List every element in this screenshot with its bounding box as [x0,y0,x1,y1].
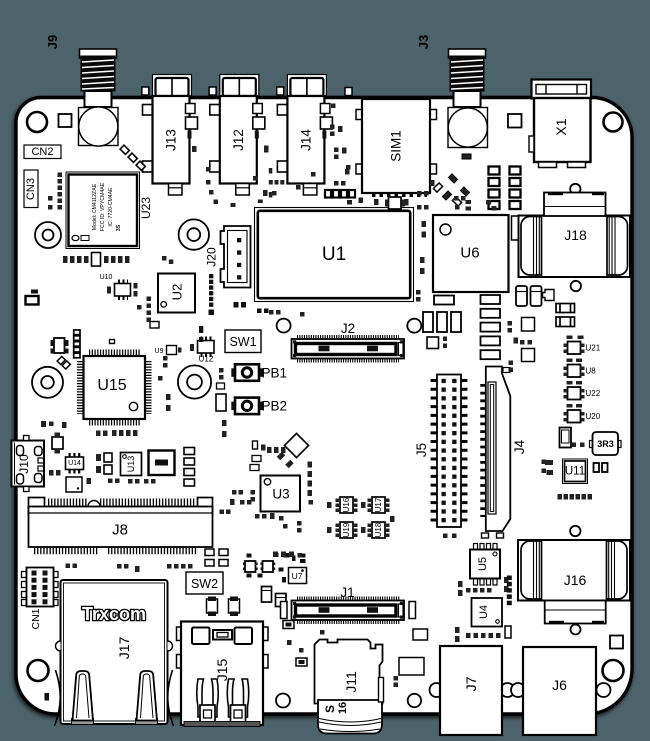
svg-text:U12: U12 [199,355,214,364]
svg-text:FCC ID: VPYCM4AE: FCC ID: VPYCM4AE [100,182,106,231]
svg-text:J10: J10 [17,454,31,474]
svg-text:U4: U4 [478,605,490,619]
svg-text:U17: U17 [374,497,383,512]
svg-text:CN1: CN1 [30,608,42,629]
svg-text:X1: X1 [553,118,569,135]
svg-text:U3: U3 [272,487,289,502]
svg-text:J7: J7 [463,676,479,691]
svg-text:J5: J5 [414,443,429,457]
svg-text:U8: U8 [586,367,597,376]
svg-text:U5: U5 [477,557,489,571]
svg-text:U11: U11 [565,466,585,478]
svg-text:J14: J14 [298,129,313,151]
svg-text:U2: U2 [170,284,185,301]
svg-text:J16: J16 [564,572,587,588]
svg-text:J13: J13 [164,129,179,151]
svg-text:U19: U19 [342,522,351,537]
svg-text:16: 16 [337,702,349,714]
svg-text:J9: J9 [45,35,60,49]
svg-text:SW1: SW1 [229,335,256,349]
svg-text:U22: U22 [586,389,601,398]
svg-text:U23: U23 [139,197,153,219]
svg-text:J6: J6 [552,677,567,693]
svg-text:U20: U20 [586,412,601,421]
svg-text:J11: J11 [343,671,359,693]
svg-text:SIM1: SIM1 [389,130,404,162]
svg-text:U21: U21 [586,344,601,353]
svg-text:CN2: CN2 [31,146,53,158]
svg-text:CN3: CN3 [25,178,37,200]
svg-text:J12: J12 [231,129,246,151]
svg-text:J18: J18 [564,227,587,243]
svg-text:3R3: 3R3 [597,439,614,449]
svg-text:U1: U1 [322,244,346,265]
svg-text:U13: U13 [126,456,136,473]
svg-text:U14: U14 [68,460,81,467]
svg-text:J15: J15 [214,659,230,682]
svg-text:U9: U9 [155,348,164,355]
svg-text:3S: 3S [116,224,122,231]
svg-text:U18: U18 [374,522,383,537]
svg-text:J17: J17 [116,637,132,660]
svg-text:J20: J20 [205,247,219,267]
svg-text:PB2: PB2 [262,399,288,414]
svg-text:U16: U16 [342,497,351,512]
svg-text:Model: CM4112ZAE: Model: CM4112ZAE [92,183,98,230]
svg-text:U10: U10 [100,274,113,281]
svg-text:S: S [323,705,337,713]
svg-text:J4: J4 [512,439,527,454]
svg-text:IC: 7720-CM4AE: IC: 7720-CM4AE [108,187,114,227]
svg-text:U15: U15 [97,377,126,394]
svg-text:J2: J2 [341,321,355,336]
svg-text:J8: J8 [112,522,128,539]
svg-text:SW2: SW2 [191,577,218,591]
svg-text:PB1: PB1 [262,365,288,380]
svg-text:Trxcom: Trxcom [82,604,146,624]
svg-text:U7: U7 [292,571,303,581]
svg-text:J3: J3 [416,35,431,49]
svg-text:U6: U6 [460,245,479,262]
